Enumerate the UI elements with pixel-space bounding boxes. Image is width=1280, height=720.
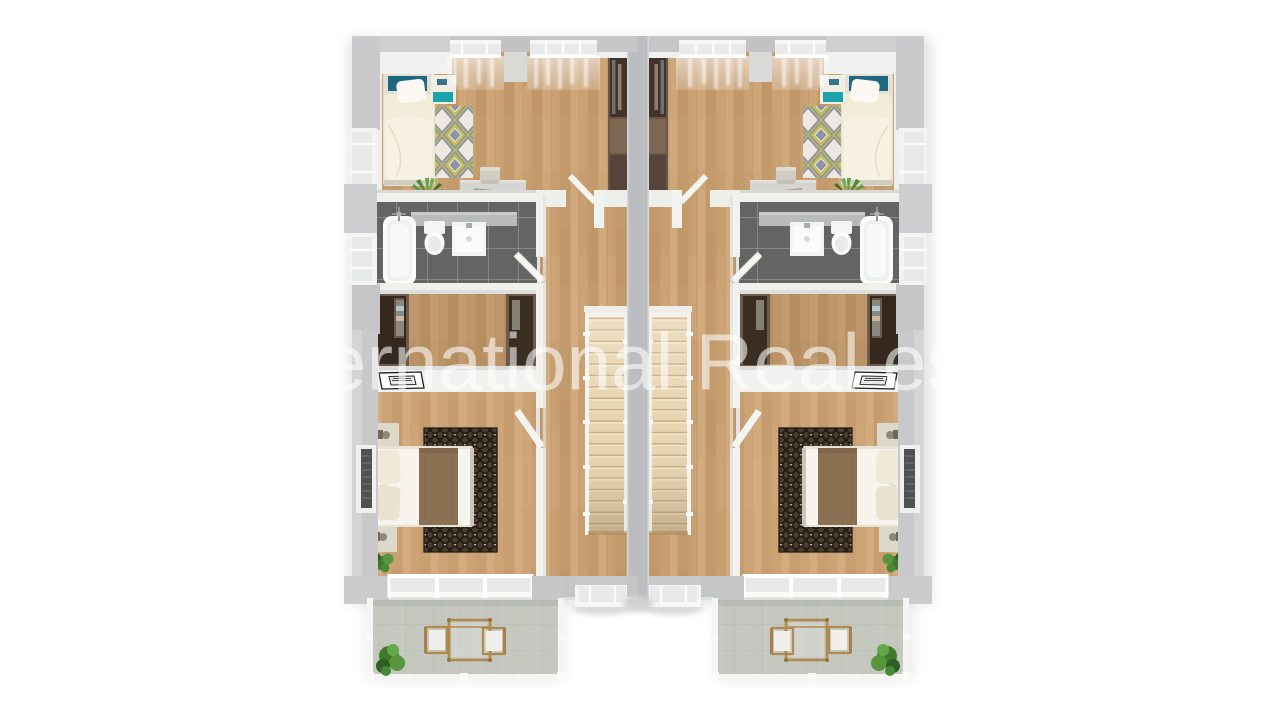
svg-text:International Real estate: International Real estate (233, 318, 1100, 407)
